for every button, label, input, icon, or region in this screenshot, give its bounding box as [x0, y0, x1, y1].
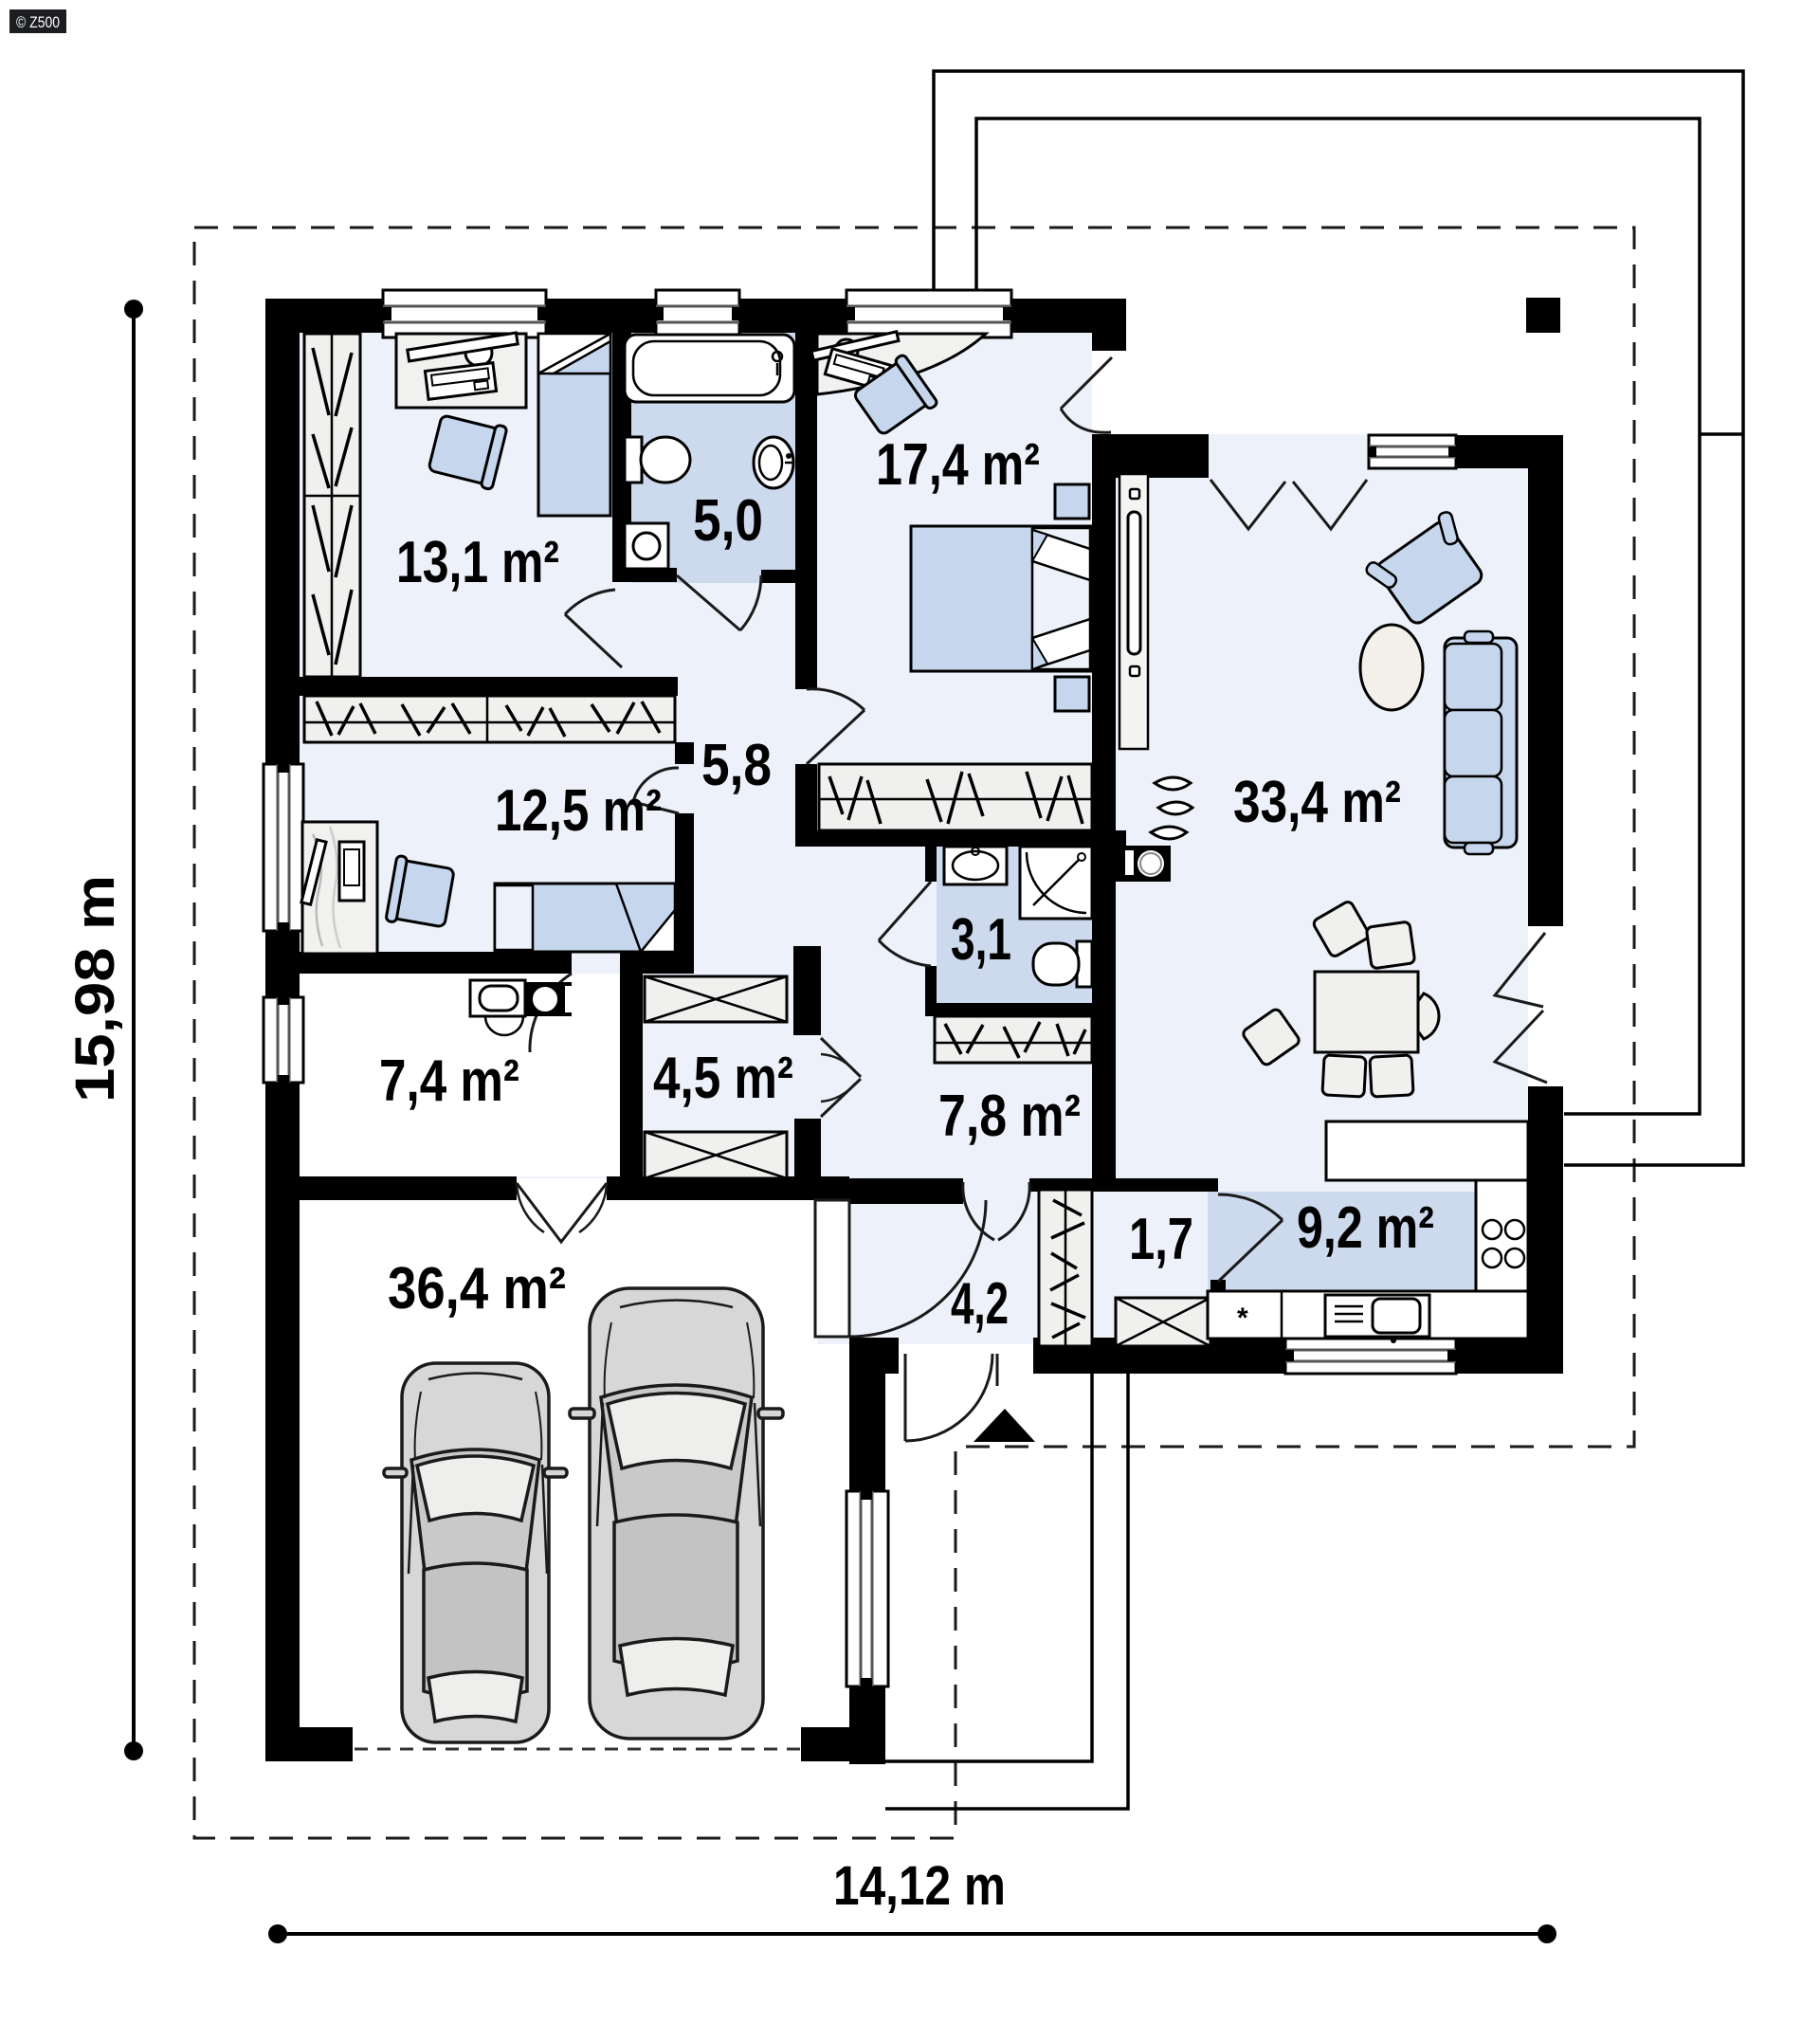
svg-text:© Z500: © Z500: [16, 13, 60, 31]
svg-text:15,98 m: 15,98 m: [64, 875, 126, 1103]
svg-text:14,12 m: 14,12 m: [833, 1855, 1006, 1917]
svg-text:3,1: 3,1: [951, 907, 1011, 973]
svg-text:*: *: [1237, 1303, 1248, 1334]
svg-text:7,8 m²: 7,8 m²: [938, 1084, 1081, 1149]
svg-text:33,4 m²: 33,4 m²: [1233, 770, 1401, 835]
svg-text:12,5 m²: 12,5 m²: [495, 778, 662, 844]
svg-text:17,4 m²: 17,4 m²: [876, 432, 1040, 498]
svg-text:13,1 m²: 13,1 m²: [396, 530, 559, 595]
svg-text:4,2: 4,2: [951, 1271, 1009, 1337]
svg-text:1,7: 1,7: [1129, 1207, 1193, 1272]
svg-text:9,2 m²: 9,2 m²: [1297, 1195, 1434, 1261]
svg-text:5,0: 5,0: [693, 488, 763, 554]
svg-text:5,8: 5,8: [701, 733, 772, 798]
svg-text:36,4 m²: 36,4 m²: [388, 1256, 566, 1321]
svg-text:4,5 m²: 4,5 m²: [653, 1046, 793, 1111]
svg-text:7,4 m²: 7,4 m²: [379, 1048, 519, 1114]
